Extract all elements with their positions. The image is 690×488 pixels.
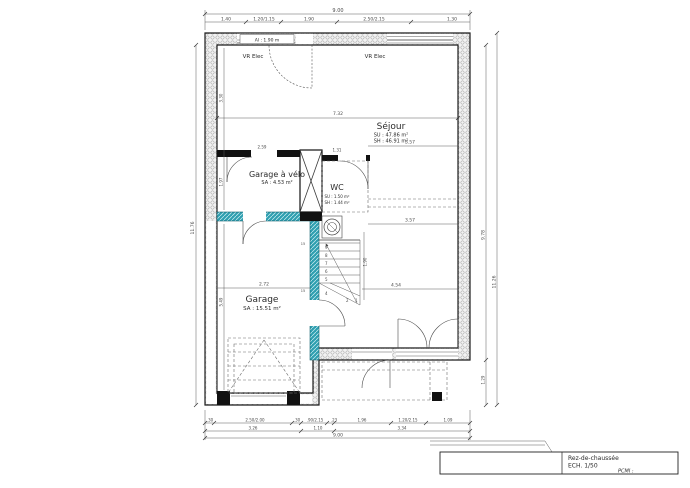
room-wc-name: WC [330, 183, 344, 192]
window-height-label: Al : 1.90 m [255, 38, 280, 44]
vr-elec-right-label: VR Elec [365, 54, 386, 60]
garage-to-hall-door-swing [319, 300, 345, 326]
dim-bottom-8: 1.09 [444, 418, 453, 423]
floor-plan-drawing: 9.00 1.40 1.20/1.15 1.90 2.50/2.15 1.30 … [0, 0, 690, 488]
dimension-lines [194, 10, 552, 452]
dim-interior-131: 1.31 [333, 148, 342, 153]
dim-bottom-sub-2: 1.10 [314, 426, 323, 431]
wc-door-swing [340, 161, 368, 189]
dim-top-2: 1.20/1.15 [253, 17, 275, 23]
dim-bottom-7: 1.20/2.15 [398, 418, 418, 423]
dim-right-bottom: 1.29 [481, 375, 486, 384]
dim-interior-272: 2.72 [259, 282, 269, 288]
titleblock-title: Rez-de-chaussée [568, 455, 619, 462]
floor-plan-sheet: 9.00 1.40 1.20/1.15 1.90 2.50/2.15 1.30 … [0, 0, 690, 488]
room-wc-su: SU : 1.50 m² [324, 194, 349, 199]
dim-wall-15-b: 15 [301, 289, 305, 293]
dim-left-total: 11.76 [190, 221, 196, 234]
room-garage-name: Garage [246, 295, 279, 305]
dim-interior-259: 2.59 [258, 145, 267, 150]
teal-wall-vertical [310, 221, 319, 360]
dim-interior-197: 1.97 [219, 177, 224, 186]
vr-elec-left-label: VR Elec [243, 54, 264, 60]
dim-interior-454: 4.54 [391, 283, 401, 289]
step-1: 1 [355, 298, 358, 303]
room-garage-velo-sa: SA : 4.53 m² [261, 180, 292, 186]
room-garage-velo-name: Garage à vélo [249, 169, 305, 179]
velo-to-garage-door-swing [243, 221, 266, 244]
room-sejour-sh: SH : 46.91 m² [374, 139, 409, 145]
garage-door-post-right [287, 391, 300, 405]
french-door-right-swing [429, 319, 458, 348]
step-9: 9 [325, 245, 328, 250]
dim-bottom-sub-3: 3.34 [398, 426, 407, 431]
garage-door-post-left [217, 391, 230, 405]
step-6: 6 [325, 269, 328, 274]
step-5: 5 [325, 277, 328, 282]
titleblock-scale: ECH. 1/50 [568, 463, 598, 470]
room-wc-sh: SH : 1.44 m² [324, 200, 350, 205]
titleblock-pcmi: PCMI : [618, 469, 634, 475]
dim-interior-357-lower: 3.57 [405, 218, 415, 224]
garage-door-symbol [228, 338, 300, 393]
terrace-post [432, 392, 442, 401]
title-block: Rez-de-chaussée ECH. 1/50 PCMI : [440, 452, 678, 475]
terrace-dashed [322, 362, 447, 401]
dim-bottom-4: .90/2.15 [307, 418, 324, 423]
dim-interior-190: 1.90 [363, 257, 368, 266]
window-top-right [387, 34, 453, 44]
french-door-left-swing [398, 319, 427, 348]
step-8: 8 [325, 253, 328, 258]
dim-top-total: 9.00 [332, 8, 343, 14]
dim-bottom-1: .30 [207, 418, 214, 423]
dim-right-outer: 11.26 [492, 275, 498, 288]
terrace-door-swing [362, 360, 390, 388]
dim-right-inner: 9.78 [481, 230, 487, 240]
dim-bottom-sub-1: 3.26 [249, 426, 258, 431]
dim-interior-549: 5.49 [219, 297, 224, 306]
dim-top-4: 2.50/2.15 [363, 17, 385, 23]
terrace-door-opening [352, 349, 392, 359]
dim-top-3: 1.90 [304, 17, 314, 23]
stairs-direction-arrow [326, 244, 357, 303]
french-door-opening [396, 349, 458, 359]
garage-left-wall-plain [206, 221, 216, 404]
entry-door-opening [296, 34, 313, 44]
room-garage-sa: SA : 15.51 m² [243, 305, 281, 312]
dim-wall-15-a: 15 [301, 242, 305, 246]
dim-bottom-total: 9.00 [333, 433, 343, 439]
dim-top-5: 1.30 [447, 17, 457, 23]
dim-bottom-3: .30 [294, 418, 301, 423]
dim-bottom-6: 1.96 [358, 418, 367, 423]
dim-interior-732: 7.32 [333, 111, 343, 117]
dim-bottom-2: 2.50/2.00 [245, 418, 265, 423]
step-7: 7 [325, 261, 328, 266]
entry-door-swing [269, 45, 312, 88]
garage-door-opening [231, 394, 286, 404]
room-sejour-name: Séjour [377, 121, 406, 132]
step-4: 4 [325, 291, 328, 296]
dim-bottom-5: .23 [331, 418, 338, 423]
dimension-texts: 9.00 1.40 1.20/1.15 1.90 2.50/2.15 1.30 … [190, 8, 498, 439]
dim-interior-330: 3.30 [219, 93, 224, 102]
dim-top-1: 1.40 [221, 17, 231, 23]
